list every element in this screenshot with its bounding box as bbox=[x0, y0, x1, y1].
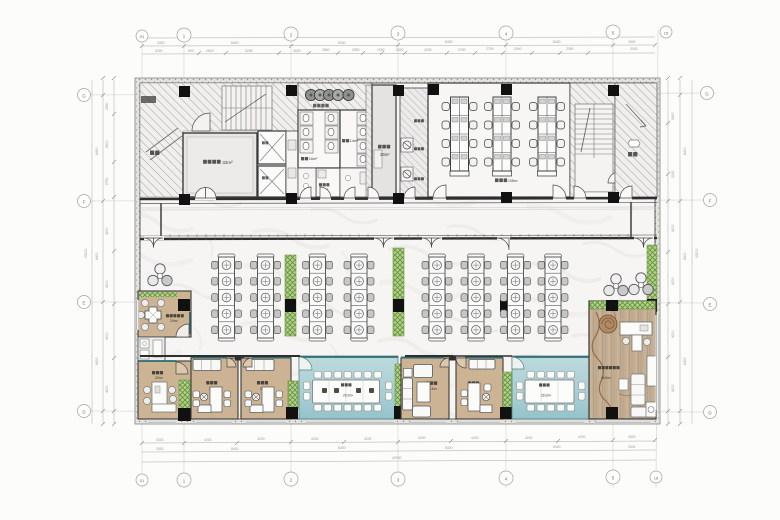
svg-text:4200: 4200 bbox=[204, 438, 212, 442]
svg-text:500: 500 bbox=[188, 49, 194, 53]
svg-text:40200: 40200 bbox=[392, 456, 402, 460]
svg-text:8400: 8400 bbox=[683, 357, 687, 365]
svg-text:F: F bbox=[83, 200, 86, 205]
svg-text:2850: 2850 bbox=[105, 102, 109, 110]
svg-text:8400: 8400 bbox=[683, 252, 687, 260]
svg-text:2750: 2750 bbox=[486, 47, 494, 51]
svg-text:32m²: 32m² bbox=[222, 160, 233, 165]
svg-text:3300: 3300 bbox=[630, 47, 638, 51]
svg-text:2300: 2300 bbox=[396, 48, 404, 52]
svg-text:8400: 8400 bbox=[683, 147, 687, 155]
svg-text:F: F bbox=[709, 199, 712, 204]
svg-text:29.2m²: 29.2m² bbox=[343, 394, 353, 398]
svg-text:3300: 3300 bbox=[156, 438, 164, 442]
svg-text:4200: 4200 bbox=[105, 385, 109, 393]
svg-text:5650: 5650 bbox=[671, 112, 675, 120]
svg-text:E: E bbox=[709, 303, 712, 308]
svg-text:5285: 5285 bbox=[245, 49, 253, 53]
svg-text:2350: 2350 bbox=[566, 47, 574, 51]
svg-text:2750: 2750 bbox=[458, 48, 466, 52]
svg-text:2850: 2850 bbox=[322, 48, 330, 52]
svg-text:G: G bbox=[705, 92, 709, 97]
svg-text:8400: 8400 bbox=[95, 147, 99, 155]
svg-text:8400: 8400 bbox=[338, 41, 346, 45]
svg-text:4200: 4200 bbox=[311, 437, 319, 441]
svg-text:8400: 8400 bbox=[95, 357, 99, 365]
svg-text:25200: 25200 bbox=[695, 248, 699, 258]
svg-text:4200: 4200 bbox=[525, 436, 533, 440]
svg-text:4200: 4200 bbox=[364, 437, 372, 441]
svg-text:8400: 8400 bbox=[231, 447, 239, 451]
svg-text:16m²: 16m² bbox=[309, 157, 318, 161]
svg-text:4200: 4200 bbox=[671, 224, 675, 232]
svg-text:25m²: 25m² bbox=[380, 152, 390, 157]
svg-text:22m²: 22m² bbox=[155, 376, 164, 380]
svg-text:2750: 2750 bbox=[105, 177, 109, 185]
svg-text:25200: 25200 bbox=[84, 248, 88, 258]
svg-text:4200: 4200 bbox=[578, 435, 586, 439]
svg-text:8400: 8400 bbox=[231, 41, 239, 45]
svg-text:4200: 4200 bbox=[105, 332, 109, 340]
svg-text:45.5m²: 45.5m² bbox=[601, 376, 611, 380]
svg-text:4200: 4200 bbox=[105, 280, 109, 288]
svg-text:4200: 4200 bbox=[424, 48, 432, 52]
svg-text:8400: 8400 bbox=[553, 445, 561, 449]
svg-text:E: E bbox=[83, 301, 86, 306]
svg-text:8400: 8400 bbox=[95, 252, 99, 260]
svg-text:3800: 3800 bbox=[105, 140, 109, 148]
svg-text:2900: 2900 bbox=[514, 47, 522, 51]
svg-text:8400: 8400 bbox=[553, 40, 561, 44]
svg-text:3300: 3300 bbox=[628, 40, 636, 44]
svg-text:D: D bbox=[708, 411, 711, 416]
svg-text:4200: 4200 bbox=[418, 436, 426, 440]
svg-text:01: 01 bbox=[140, 478, 145, 483]
svg-text:4200: 4200 bbox=[671, 384, 675, 392]
svg-text:8400: 8400 bbox=[338, 446, 346, 450]
svg-text:14m²: 14m² bbox=[350, 139, 359, 143]
svg-text:D: D bbox=[82, 410, 85, 415]
svg-text:8400: 8400 bbox=[445, 446, 453, 450]
svg-text:2250: 2250 bbox=[671, 170, 675, 178]
svg-text:3300: 3300 bbox=[155, 49, 163, 53]
svg-text:4200: 4200 bbox=[671, 330, 675, 338]
svg-text:G: G bbox=[82, 94, 86, 99]
svg-text:8400: 8400 bbox=[445, 40, 453, 44]
svg-text:4200: 4200 bbox=[471, 436, 479, 440]
svg-text:2550: 2550 bbox=[352, 48, 360, 52]
svg-text:105m²: 105m² bbox=[508, 179, 518, 183]
svg-text:2615: 2615 bbox=[206, 49, 214, 53]
svg-text:01: 01 bbox=[140, 34, 145, 39]
svg-text:4200: 4200 bbox=[257, 437, 265, 441]
svg-text:15: 15 bbox=[664, 31, 669, 36]
svg-text:3000: 3000 bbox=[293, 49, 301, 53]
svg-text:4200: 4200 bbox=[671, 277, 675, 285]
svg-text:10m²: 10m² bbox=[170, 319, 179, 323]
svg-text:3300: 3300 bbox=[156, 447, 164, 451]
svg-text:3300: 3300 bbox=[628, 445, 636, 449]
svg-text:16: 16 bbox=[654, 476, 659, 481]
svg-text:3300: 3300 bbox=[628, 435, 636, 439]
svg-text:29.2m²: 29.2m² bbox=[541, 394, 551, 398]
svg-text:4200: 4200 bbox=[105, 227, 109, 235]
svg-text:3300: 3300 bbox=[157, 41, 165, 45]
